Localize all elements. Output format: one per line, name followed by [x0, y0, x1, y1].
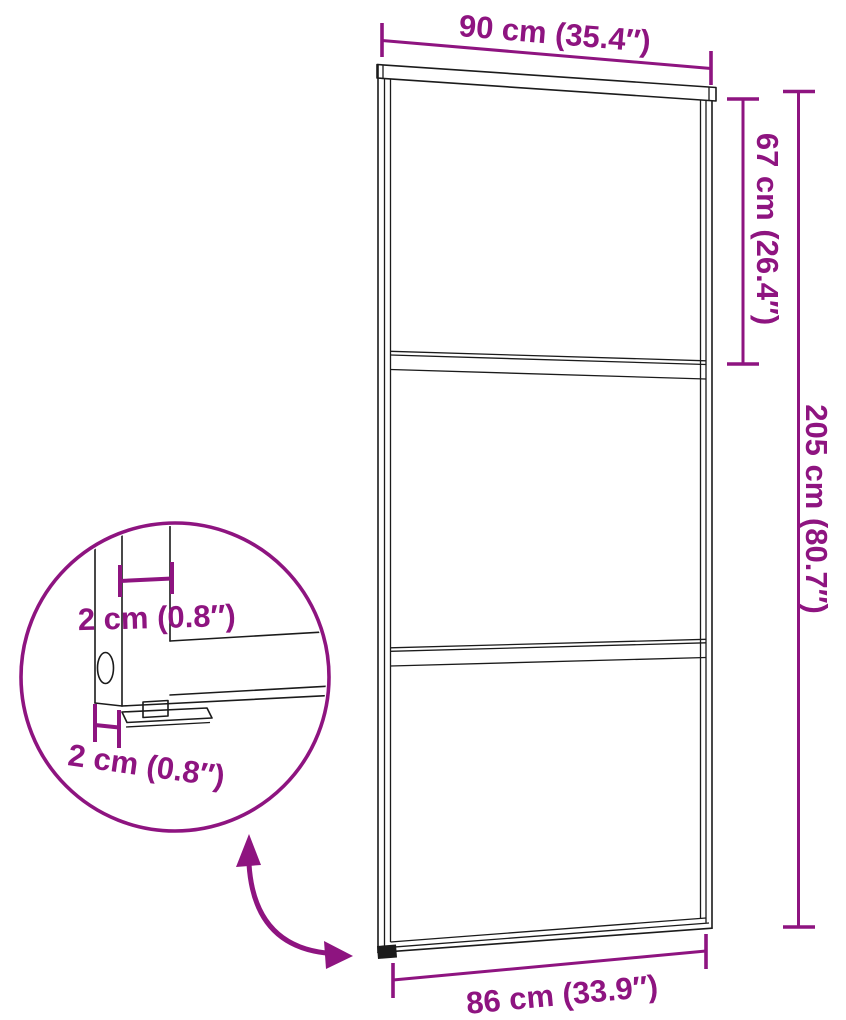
diagram-canvas: 90 cm (35.4″) 86 cm (33.9″) 67 cm (26.4″… — [0, 0, 846, 1020]
door-left-stile — [378, 65, 391, 953]
dimension-upper-panel-height: 67 cm (26.4″) — [727, 99, 785, 364]
bottom-width-label: 86 cm (33.9″) — [465, 968, 660, 1020]
total-height-label: 205 cm (80.7″) — [799, 404, 834, 614]
dimension-total-height: 205 cm (80.7″) — [783, 92, 834, 928]
dimension-bottom-width: 86 cm (33.9″) — [393, 934, 706, 1020]
door-divider-rail-2 — [391, 639, 707, 666]
door-divider-rail-1 — [391, 351, 707, 379]
detail-profile-depth-label: 2 cm (0.8″) — [77, 598, 236, 637]
upper-panel-height-label: 67 cm (26.4″) — [750, 133, 785, 325]
dimension-top-width: 90 cm (35.4″) — [382, 8, 711, 85]
door-right-stile — [701, 101, 713, 929]
door-bottom-rail — [377, 918, 712, 959]
top-width-label: 90 cm (35.4″) — [458, 8, 653, 59]
door-top-rail — [377, 65, 716, 102]
floor-guide-foot — [377, 945, 397, 960]
door-drawing — [377, 65, 716, 960]
zoom-arrow-icon — [236, 834, 353, 969]
detail-magnifier: 2 cm (0.8″) 2 cm (0.8″) — [21, 500, 340, 831]
dimension-diagram-svg: 90 cm (35.4″) 86 cm (33.9″) 67 cm (26.4″… — [0, 0, 846, 1020]
